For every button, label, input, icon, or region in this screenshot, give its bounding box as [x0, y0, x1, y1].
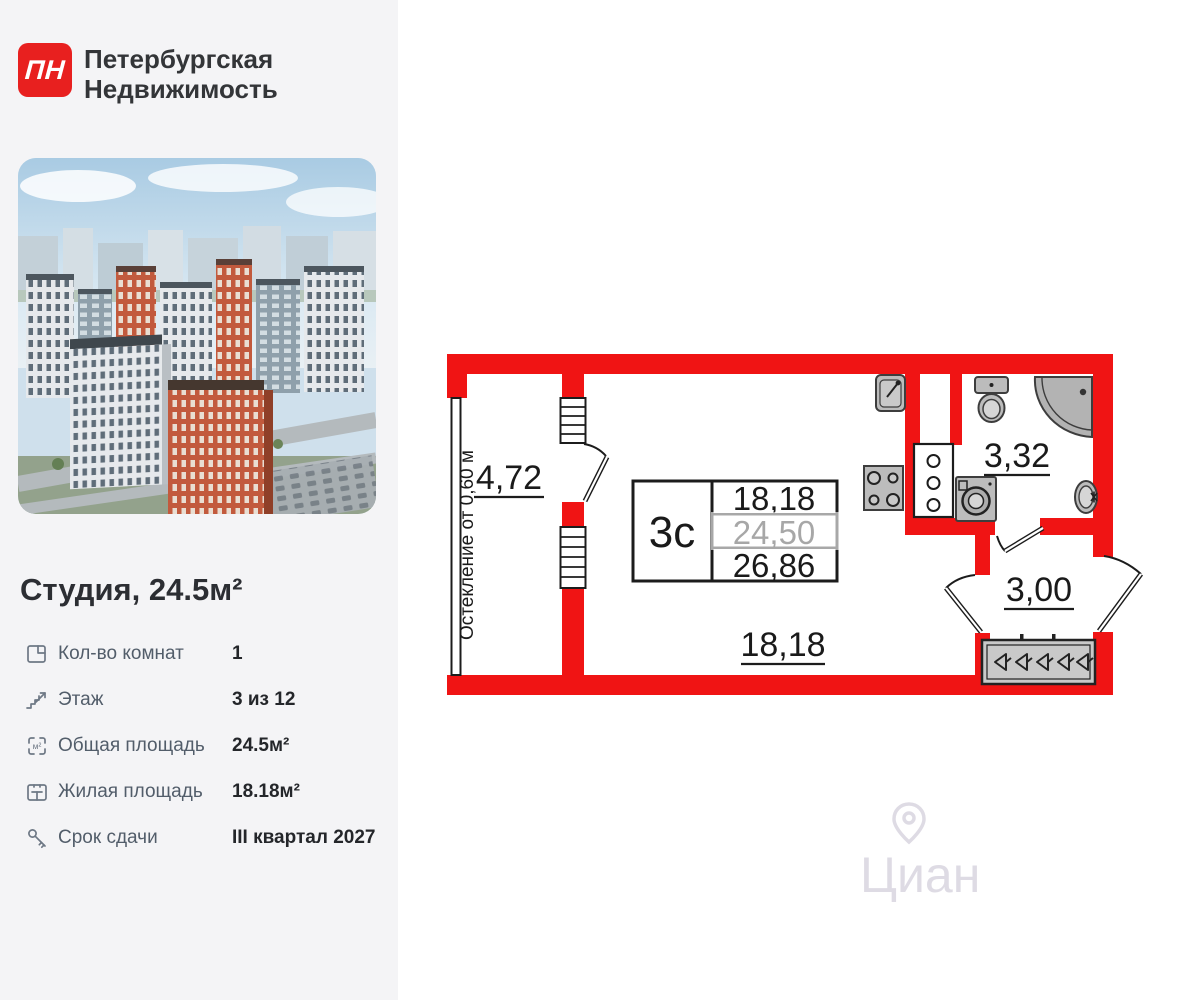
building-photo[interactable]	[18, 158, 376, 514]
detail-value: 3 из 12	[232, 689, 295, 711]
brand-name-line2: Недвижимость	[84, 74, 278, 104]
table-total-with-balcony: 26,86	[733, 547, 816, 584]
brand-name: Петербургская Недвижимость	[84, 44, 278, 104]
detail-label: Общая площадь	[58, 735, 205, 757]
entrance-door-icon	[1099, 556, 1141, 631]
detail-label: Срок сдачи	[58, 827, 158, 849]
glazing-note-label: Остекление от 0,60 м	[457, 450, 478, 640]
washing-machine-icon	[956, 477, 996, 521]
total-area-icon: м²	[24, 734, 50, 758]
building-render-illustration	[18, 158, 376, 514]
living-area-icon	[24, 780, 50, 804]
cian-watermark: Циан	[852, 800, 1092, 910]
window-icon	[561, 527, 586, 588]
kitchen-sink-icon	[876, 375, 905, 411]
pn-logo-text: ПН	[24, 55, 66, 86]
ventilation-shaft-icon	[914, 444, 953, 517]
detail-row-floor: Этаж 3 из 12	[24, 677, 376, 723]
watermark-band	[711, 512, 879, 550]
detail-row-total-area: м² Общая площадь 24.5м²	[24, 723, 376, 769]
details-list: Кол-во комнат 1 Этаж 3 из 12 м² Общая пл…	[24, 631, 376, 861]
wardrobe-icon	[982, 634, 1095, 684]
apartment-type-label: 3с	[649, 508, 695, 557]
key-icon	[24, 826, 50, 850]
detail-row-rooms: Кол-во комнат 1	[24, 631, 376, 677]
detail-row-living-area: Жилая площадь 18.18м²	[24, 769, 376, 815]
balcony-area-label: 4,72	[476, 459, 542, 497]
detail-value: 24.5м²	[232, 735, 289, 757]
shower-icon	[1035, 377, 1092, 437]
detail-label: Жилая площадь	[58, 781, 203, 803]
bathroom-door-icon	[997, 528, 1043, 551]
hallway-area-label: 3,00	[1006, 571, 1072, 609]
area-table: 3с 18,18 24,50 26,86	[633, 480, 879, 584]
floorplan-drawing: 3с 18,18 24,50 26,86 4,72 3,32 3,00 18,1…	[440, 345, 1160, 700]
table-living-area: 18,18	[733, 480, 816, 517]
brand-name-line1: Петербургская	[84, 44, 278, 74]
floorplan[interactable]: 3с 18,18 24,50 26,86 4,72 3,32 3,00 18,1…	[440, 345, 1160, 700]
room-plan-icon	[24, 642, 50, 666]
stove-icon	[864, 466, 903, 510]
bath-sink-icon	[1075, 481, 1097, 513]
window-icon	[561, 398, 586, 443]
watermark-text: Циан	[860, 847, 980, 903]
bathroom-area-label: 3,32	[984, 437, 1050, 475]
detail-label: Этаж	[58, 689, 103, 711]
page-title: Студия, 24.5м²	[20, 572, 242, 608]
detail-row-completion: Срок сдачи III квартал 2027	[24, 815, 376, 861]
pn-logo[interactable]: ПН	[18, 43, 72, 97]
listing-page: { "brand": { "logo_text": "ПН", "name_li…	[0, 0, 1200, 1000]
detail-value: III квартал 2027	[232, 827, 375, 849]
location-pin-icon	[894, 804, 924, 842]
main-room-area-label: 18,18	[740, 626, 825, 664]
detail-value: 18.18м²	[232, 781, 300, 803]
balcony-door-icon	[584, 444, 607, 501]
svg-text:м²: м²	[33, 741, 42, 751]
stairs-icon	[24, 688, 50, 712]
hallway-door-icon	[946, 575, 981, 632]
detail-label: Кол-во комнат	[58, 643, 184, 665]
detail-value: 1	[232, 643, 243, 665]
listing-sidebar: ПН Петербургская Недвижимость	[0, 0, 398, 1000]
toilet-icon	[975, 377, 1008, 422]
